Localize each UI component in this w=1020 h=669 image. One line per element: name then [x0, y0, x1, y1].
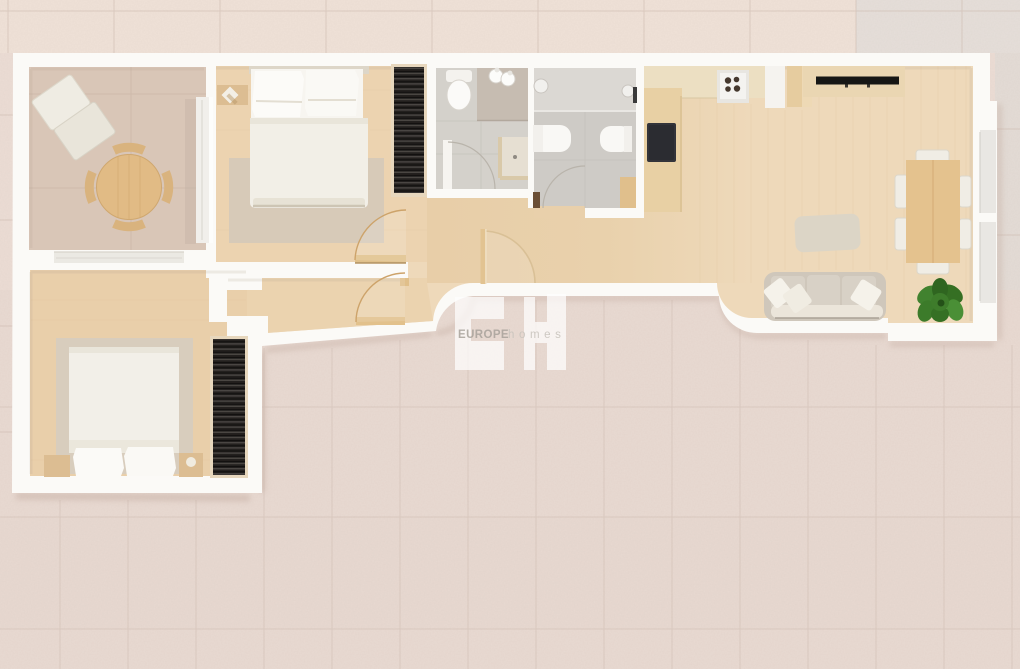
svg-text:EUROPE: EUROPE — [458, 329, 509, 341]
svg-text:homes: homes — [508, 329, 566, 341]
